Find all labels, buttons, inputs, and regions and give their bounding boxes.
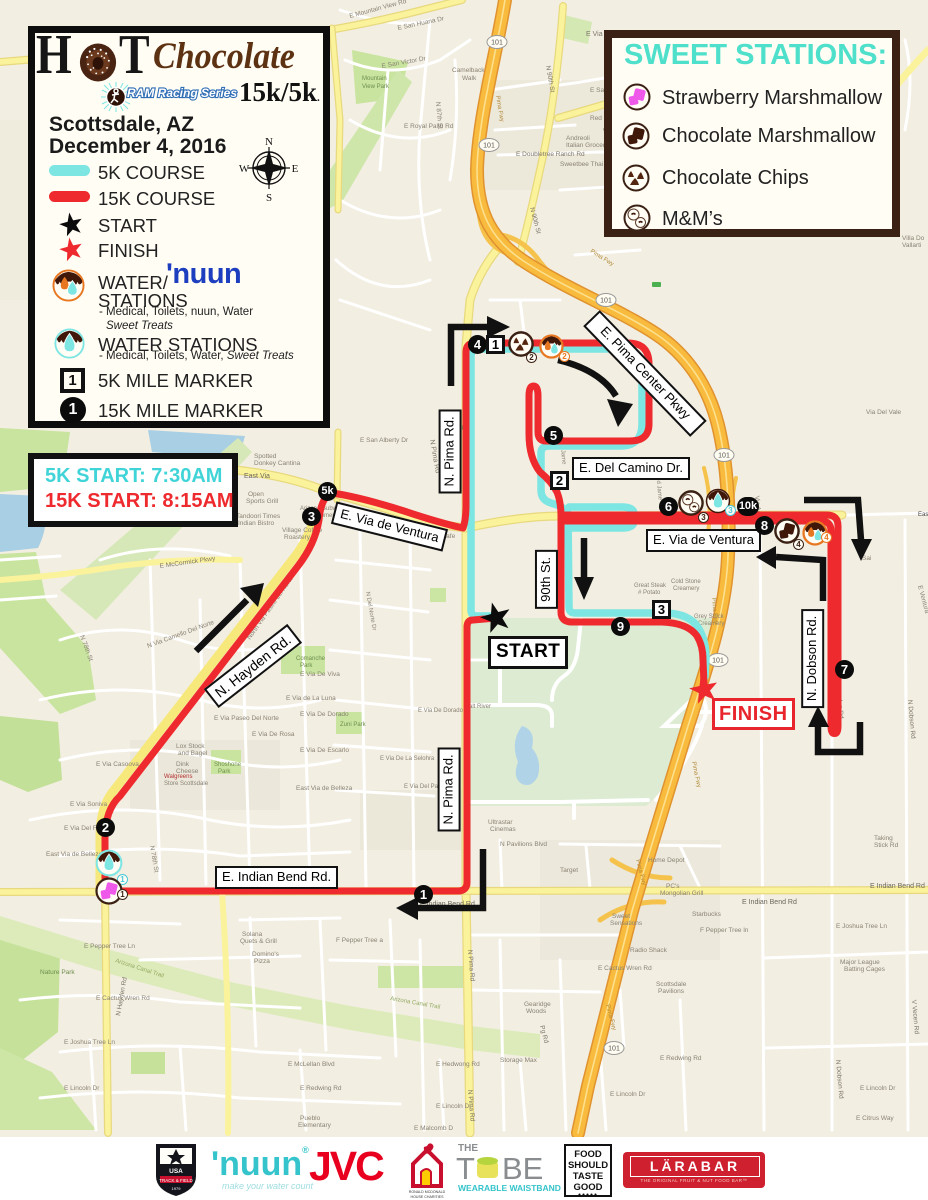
svg-text:Radio Shack: Radio Shack	[630, 947, 668, 954]
svg-text:Major League: Major League	[840, 959, 880, 966]
svg-text:Cinemas: Cinemas	[490, 826, 516, 833]
svg-text:Pueblo: Pueblo	[300, 1115, 321, 1122]
svg-text:E Via De Escarlo: E Via De Escarlo	[300, 747, 349, 754]
svg-text:W: W	[239, 163, 250, 175]
svg-text:E: E	[292, 163, 299, 175]
svg-text:101: 101	[600, 298, 612, 305]
svg-text:T: T	[456, 1151, 475, 1186]
svg-text:Quets & Grill: Quets & Grill	[240, 938, 277, 945]
svg-text:Scottsdale: Scottsdale	[656, 981, 687, 988]
svg-text:E Indian Bend Rd: E Indian Bend Rd	[742, 899, 797, 906]
svg-text:WEARABLE WAISTBAND: WEARABLE WAISTBAND	[458, 1183, 561, 1193]
svg-text:East: East	[918, 512, 928, 518]
svg-text:Villa Do: Villa Do	[902, 235, 925, 242]
svg-text:101: 101	[491, 40, 503, 47]
svg-text:Batting Cages: Batting Cages	[844, 966, 886, 973]
svg-text:BE: BE	[502, 1151, 543, 1186]
svg-text:Creamery: Creamery	[698, 621, 724, 627]
svg-text:Sports Grill: Sports Grill	[246, 498, 279, 505]
svg-text:TRACK & FIELD: TRACK & FIELD	[159, 1178, 193, 1183]
svg-text:Storage Max: Storage Max	[500, 1057, 538, 1064]
svg-text:Cold Stone: Cold Stone	[671, 579, 701, 585]
svg-text:Mountain: Mountain	[362, 76, 387, 82]
svg-text:Vallarti: Vallarti	[902, 242, 921, 249]
svg-text:E Lincoln Dr: E Lincoln Dr	[610, 1091, 646, 1098]
svg-text:Roastery: Roastery	[284, 534, 311, 541]
svg-text:F Pepper Tree ln: F Pepper Tree ln	[700, 927, 749, 934]
svg-text:Grey Stock: Grey Stock	[694, 614, 725, 620]
svg-text:Dink: Dink	[176, 761, 190, 768]
svg-text:E McLellan Blvd: E McLellan Blvd	[288, 1061, 335, 1068]
svg-text:Walk: Walk	[462, 75, 477, 82]
svg-text:E Via Casoova: E Via Casoova	[96, 761, 139, 768]
svg-text:Home Depot: Home Depot	[648, 857, 685, 864]
svg-text:Stick Rd: Stick Rd	[874, 842, 899, 849]
svg-text:Walgreens: Walgreens	[164, 774, 192, 780]
svg-text:101: 101	[712, 658, 724, 665]
svg-text:East Via de Belleza: East Via de Belleza	[296, 785, 353, 792]
svg-text:101: 101	[608, 1046, 620, 1053]
svg-text:RONALD MCDONALD: RONALD MCDONALD	[409, 1190, 446, 1194]
svg-text:E Doubletree Ranch Rd: E Doubletree Ranch Rd	[516, 151, 585, 158]
svg-text:Andreoli: Andreoli	[566, 135, 590, 142]
svg-text:and Bagel: and Bagel	[178, 750, 208, 757]
svg-text:View Park: View Park	[362, 84, 390, 90]
svg-text:E Royal Palm Rd: E Royal Palm Rd	[404, 123, 454, 130]
svg-text:Camelback: Camelback	[452, 67, 485, 74]
svg-text:N Pavilions Blvd: N Pavilions Blvd	[500, 841, 547, 848]
svg-text:E Joshua Tree Ln: E Joshua Tree Ln	[836, 923, 887, 930]
svg-text:Solana: Solana	[242, 931, 263, 938]
svg-text:Taking: Taking	[874, 835, 893, 842]
svg-text:E Redwing Rd: E Redwing Rd	[300, 1085, 342, 1092]
svg-text:PC's: PC's	[666, 883, 680, 890]
svg-text:E San Alberty Dr: E San Alberty Dr	[360, 437, 409, 444]
svg-text:E Lincoln Dr: E Lincoln Dr	[64, 1085, 100, 1092]
svg-text:HOUSE CHARITIES: HOUSE CHARITIES	[411, 1195, 445, 1199]
svg-text:E Via De Dorado: E Via De Dorado	[300, 711, 349, 718]
svg-text:S: S	[266, 192, 272, 203]
svg-text:Via Del Vale: Via Del Vale	[866, 409, 902, 416]
svg-text:E Redwing Rd: E Redwing Rd	[660, 1055, 702, 1062]
svg-text:Pizza: Pizza	[254, 958, 270, 965]
svg-text:Shoshone: Shoshone	[214, 762, 242, 768]
svg-text:101: 101	[483, 143, 495, 150]
svg-text:101: 101	[718, 453, 730, 460]
svg-text:# Potato: # Potato	[638, 590, 661, 596]
svg-text:Great Steak: Great Steak	[634, 583, 667, 589]
svg-text:1979: 1979	[172, 1186, 182, 1191]
svg-text:Comanche: Comanche	[296, 656, 326, 662]
svg-text:Woods: Woods	[526, 1008, 547, 1015]
svg-text:Target: Target	[560, 867, 578, 874]
svg-text:Mongolian Grill: Mongolian Grill	[660, 890, 704, 897]
svg-text:USA: USA	[169, 1168, 183, 1175]
svg-text:E Via De Dorado: E Via De Dorado	[418, 708, 464, 714]
svg-text:E Indian Bend Rd: E Indian Bend Rd	[870, 883, 925, 890]
svg-text:E Cactus Wren Rd: E Cactus Wren Rd	[96, 995, 150, 1002]
svg-text:Gearidge: Gearidge	[524, 1001, 551, 1008]
svg-text:E Via de La Luna: E Via de La Luna	[286, 695, 336, 702]
svg-text:Nature Park: Nature Park	[40, 969, 75, 976]
svg-text:Creamery: Creamery	[673, 586, 699, 592]
svg-text:Domino's: Domino's	[252, 951, 280, 958]
svg-text:E Citrus Way: E Citrus Way	[856, 1115, 894, 1122]
svg-text:Starbucks: Starbucks	[692, 911, 722, 918]
svg-text:E Via De Viva: E Via De Viva	[300, 671, 340, 678]
svg-text:Spotted: Spotted	[254, 453, 277, 460]
svg-text:Elementary: Elementary	[298, 1122, 332, 1129]
svg-text:E Via De Rosa: E Via De Rosa	[252, 731, 295, 738]
svg-text:E Via De La Selohra: E Via De La Selohra	[380, 756, 435, 762]
svg-text:E Joshua Tree Ln: E Joshua Tree Ln	[64, 1039, 115, 1046]
svg-text:Park: Park	[218, 769, 231, 775]
svg-text:Tandoori Times: Tandoori Times	[236, 513, 281, 520]
svg-text:F Pepper Tree a: F Pepper Tree a	[336, 937, 383, 944]
svg-text:E Lincoln Dr: E Lincoln Dr	[860, 1085, 896, 1092]
svg-text:Donkey Cantina: Donkey Cantina	[254, 460, 301, 467]
svg-text:Indian Bistro: Indian Bistro	[238, 520, 275, 527]
svg-text:Ultrastar: Ultrastar	[488, 819, 513, 826]
svg-text:Sweetbee Thai: Sweetbee Thai	[560, 161, 603, 168]
svg-text:E Malcomb D: E Malcomb D	[414, 1125, 453, 1132]
svg-text:E Hedwong Rd: E Hedwong Rd	[436, 1061, 480, 1068]
svg-text:Sweet: Sweet	[612, 913, 630, 920]
svg-text:Sensations: Sensations	[610, 920, 643, 927]
svg-text:N: N	[265, 136, 273, 148]
svg-text:Park: Park	[300, 663, 313, 669]
svg-text:Italian Grocer: Italian Grocer	[566, 142, 606, 149]
svg-text:E Via Soniva: E Via Soniva	[70, 801, 107, 808]
svg-text:Store Scottsdale: Store Scottsdale	[164, 781, 209, 787]
svg-text:E Cactus Wren Rd: E Cactus Wren Rd	[598, 965, 652, 972]
svg-text:East Via: East Via	[244, 473, 270, 480]
svg-text:E Via Paseo Del Norte: E Via Paseo Del Norte	[214, 715, 279, 722]
svg-text:E Pepper Tree Ln: E Pepper Tree Ln	[84, 943, 135, 950]
svg-text:Pavilions: Pavilions	[658, 988, 685, 995]
svg-text:Lox Stock: Lox Stock	[176, 743, 205, 750]
svg-text:E Lincoln Dr: E Lincoln Dr	[436, 1103, 472, 1110]
svg-text:Open: Open	[248, 491, 264, 498]
svg-text:Zuni Park: Zuni Park	[340, 722, 367, 728]
